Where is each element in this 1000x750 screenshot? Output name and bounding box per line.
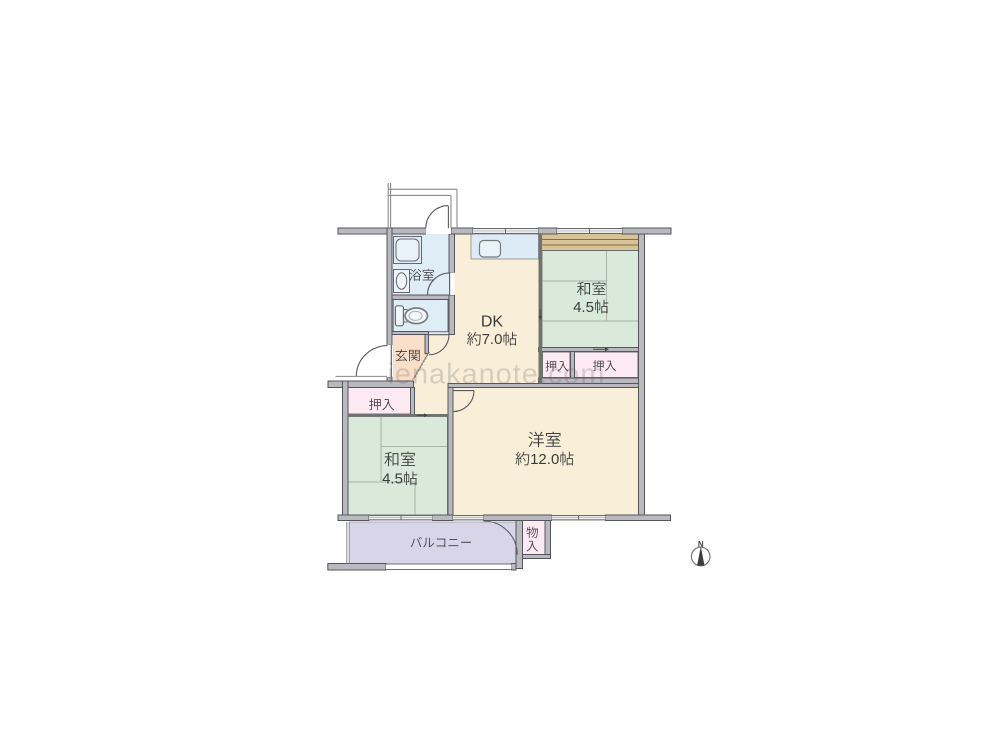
svg-text:7.0: 7.0: [482, 331, 503, 348]
svg-text:4.5: 4.5: [382, 471, 403, 488]
svg-text:4.5: 4.5: [573, 299, 594, 316]
svg-text:N: N: [698, 540, 704, 549]
svg-text:12.0: 12.0: [530, 451, 559, 468]
svg-text:ienakanote.com: ienakanote.com: [388, 359, 606, 391]
svg-text:DK: DK: [481, 313, 504, 330]
